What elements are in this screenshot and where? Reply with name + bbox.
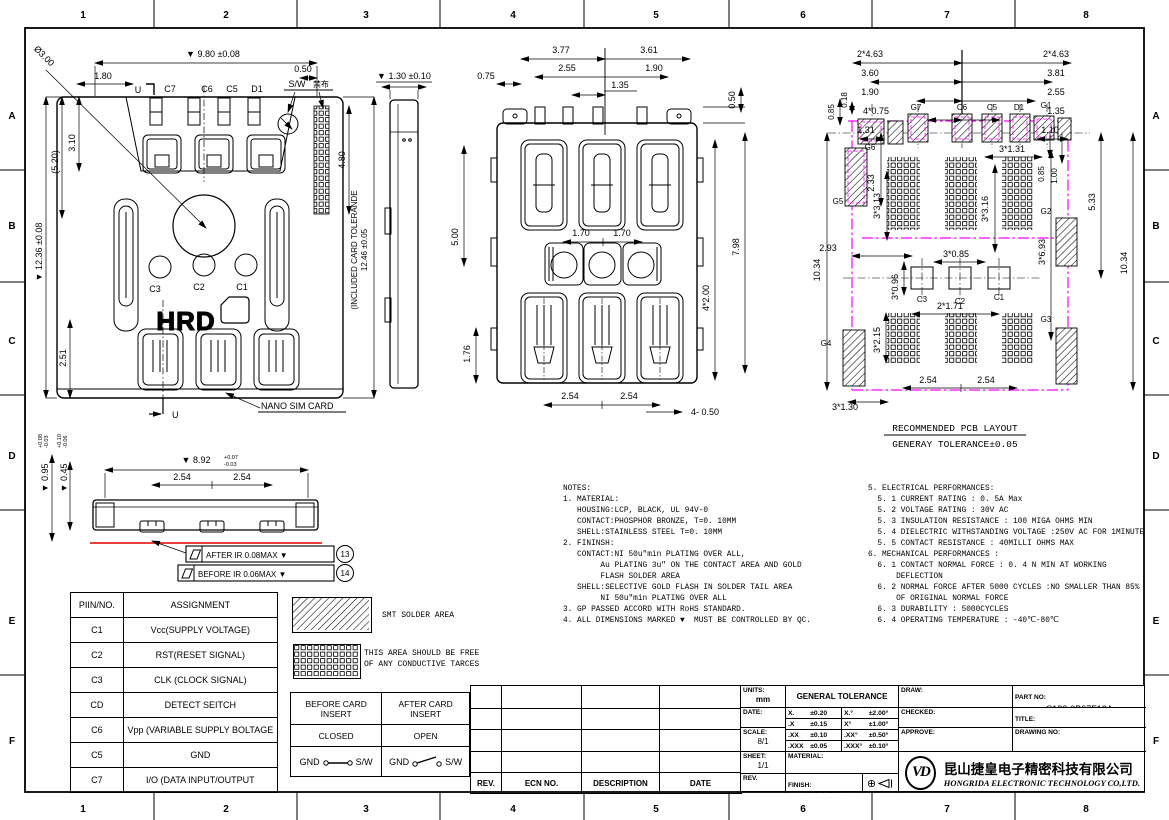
row-label: A <box>1152 111 1159 122</box>
balloon-number: 13 <box>341 550 350 559</box>
table-cell: X.° <box>841 708 866 719</box>
table-cell: X. <box>786 708 808 719</box>
dim-label: 2.55 <box>1047 87 1065 97</box>
revision-empty-cell <box>659 708 741 729</box>
row-label: E <box>9 616 16 627</box>
revision-empty-cell <box>659 751 741 772</box>
row-label: C <box>1152 336 1159 347</box>
dim-label: 2.33 <box>866 174 876 192</box>
scale-value: 8/1 <box>741 737 785 746</box>
tolerance-table-body: X.±0.20X.°±2.00°.X±0.15X°±1.00°.XX±0.10.… <box>786 708 898 751</box>
drawing-no-label: DRAWING NO: <box>1013 728 1146 737</box>
table-cell: ±0.50° <box>867 730 898 741</box>
dim-label: 4- 0.50 <box>691 407 719 417</box>
revision-empty-cell <box>501 729 581 751</box>
table-cell: Vcc(SUPPLY VOLTAGE) <box>123 618 277 643</box>
dim-label: ▼ 1.30 ±0.10 <box>377 71 431 81</box>
switch-state-open: OPEN <box>382 725 470 747</box>
dim-label: 0.75 <box>477 71 495 81</box>
row-label: F <box>1153 736 1159 747</box>
revision-table: REV. ECN NO. DESCRIPTION DATE <box>470 685 742 794</box>
title-cell: TITLE: 1.3H NANO SIM CARD CONN. <box>1013 708 1146 728</box>
flatness-symbol-icon <box>190 550 201 559</box>
dim-label: ▼ 8.92 <box>182 455 211 465</box>
sheet-value: 1/1 <box>741 761 785 770</box>
table-cell: .XX° <box>841 730 866 741</box>
side-tabs <box>491 158 703 350</box>
table-cell: .X <box>786 719 808 730</box>
smt-solder-area-label: SMT SOLDER AREA <box>382 610 454 621</box>
notes-material-finish: NOTES: 1. MATERIAL: HOUSING:LCP, BLACK, … <box>563 484 863 627</box>
col-label: 7 <box>944 804 950 815</box>
bottom-contact-windows <box>138 329 299 390</box>
row-label: D <box>8 451 15 462</box>
pin-table-body: C1Vcc(SUPPLY VOLTAGE)C2RST(RESET SIGNAL)… <box>71 618 278 793</box>
table-cell: X° <box>841 719 866 730</box>
revision-empty-cell <box>581 708 659 729</box>
col-label: 2 <box>223 804 229 815</box>
revision-header-rev: REV. <box>471 772 501 793</box>
draw-cell: DRAW: <box>899 686 1013 708</box>
dim-label: 1.35 <box>1047 106 1065 116</box>
dim-label: 3*3.13 <box>872 193 882 219</box>
flatness-symbol-icon <box>182 569 193 578</box>
flatness-note: AFTER IR 0.08MAX ▼ <box>206 551 288 560</box>
revision-empty-cell <box>581 729 659 751</box>
lower-windows <box>521 293 683 383</box>
contact-label: C6 <box>201 84 213 94</box>
table-cell: C5 <box>71 743 124 768</box>
col-label: 8 <box>1083 10 1089 21</box>
dim-label: 3.10 <box>67 134 77 152</box>
col-label: 7 <box>944 10 950 21</box>
table-cell: C7 <box>71 768 124 793</box>
general-tolerance-header: GENERAL TOLERANCE <box>786 686 899 708</box>
table-cell: Vpp (VARIABLE SUPPLY BOLTAGE <box>123 718 277 743</box>
revision-empty-cell <box>659 729 741 751</box>
nano-sim-icon <box>221 297 249 323</box>
col-label: 1 <box>80 804 86 815</box>
dim-label: 7.98 <box>731 238 741 256</box>
dim-label: 0.85 <box>827 104 836 120</box>
pin-assignment-table: PIIN/NO. ASSIGNMENT C1Vcc(SUPPLY VOLTAGE… <box>70 592 278 793</box>
dim-label: 4*2.00 <box>701 285 711 311</box>
top-solder-pins <box>150 98 260 125</box>
table-cell: RST(RESET SIGNAL) <box>123 643 277 668</box>
pcb-caption-title: RECOMMENDED PCB LAYOUT <box>892 423 1018 434</box>
col-label: 4 <box>510 804 516 815</box>
dim-label: Ø3.00 <box>32 44 56 68</box>
dim-label: 3.61 <box>640 45 658 55</box>
logo-text: VD <box>912 764 929 781</box>
dim-tolerance: -0.06 <box>63 435 69 448</box>
table-cell: CLK (CLOCK SIGNAL) <box>123 668 277 693</box>
revision-empty-cell <box>581 686 659 708</box>
top-view <box>46 63 374 414</box>
tolerance-table-cell: X.±0.20X.°±2.00°.X±0.15X°±1.00°.XX±0.10.… <box>786 708 899 752</box>
col-label: 5 <box>653 804 659 815</box>
dim-label: 1.70 <box>613 228 631 238</box>
dim-label: 3.81 <box>1047 68 1065 78</box>
dim-label: 1.90 <box>645 63 663 73</box>
table-cell: .XXX° <box>841 741 866 752</box>
pad-label: C1 <box>994 293 1005 302</box>
approve-cell: APPROVE: <box>899 728 1013 752</box>
dim-label: 3*2.15 <box>872 327 882 353</box>
sheet-cell: SHEET: 1/1 <box>741 752 786 774</box>
dim-label: 2.93 <box>819 243 837 253</box>
dim-label: 2*4.63 <box>857 49 883 59</box>
table-cell: ±2.00° <box>867 708 898 719</box>
rev-label: REV. <box>741 774 785 783</box>
dim-label: 12.46 ±0.05 <box>360 228 369 271</box>
company-name-cn: 昆山捷皇电子精密科技有限公司 <box>944 758 1140 778</box>
row-label: C <box>8 336 15 347</box>
row-label: D <box>1152 451 1159 462</box>
pad-label: C5 <box>987 103 998 112</box>
dim-label: 1.00 <box>1050 168 1059 184</box>
table-cell: ±0.20 <box>808 708 841 719</box>
revision-empty-cell <box>581 751 659 772</box>
dim-tolerance: -0.03 <box>224 462 237 468</box>
draw-label: DRAW: <box>899 686 1012 695</box>
dim-label: 1.70 <box>572 228 590 238</box>
revision-empty-cell <box>471 729 501 751</box>
part-no-label: PART NO: <box>1013 693 1048 702</box>
dim-label: 3*0.85 <box>943 249 969 259</box>
revision-empty-cell <box>659 686 741 708</box>
date-label: DATE: <box>741 708 785 717</box>
pad-label: G7 <box>911 103 922 112</box>
company-name-en: HONGRIDA ELECTRONIC TECHNOLOGY CO,LTD. <box>944 778 1140 788</box>
dim-label: 3.60 <box>861 68 879 78</box>
conductive-free-label: THIS AREA SHOULD BE FREE OF ANY CONDUCTI… <box>364 648 479 670</box>
dim-label: 5.00 <box>450 228 460 246</box>
finish-label: FINISH: <box>786 781 813 790</box>
middle-windows <box>545 243 661 285</box>
dim-label: 1.80 <box>94 71 112 81</box>
sw-label: S/W <box>445 757 462 767</box>
units-label: UNITS: <box>741 686 785 695</box>
pcb-caption-tolerance: GENERAY TOLERANCE±0.05 <box>892 439 1018 450</box>
balloon-number: 14 <box>341 569 350 578</box>
company-logo: VD <box>905 756 936 790</box>
dim-label: 1.10 <box>1041 125 1059 135</box>
switch-closed-icon <box>322 755 354 769</box>
dim-label: 4.80 <box>337 151 347 169</box>
table-cell: C3 <box>71 668 124 693</box>
contact-label: C1 <box>236 282 248 292</box>
switch-col-header: BEFORE CARD INSERT <box>291 693 382 725</box>
revision-empty-cell <box>471 686 501 708</box>
pad-label: C3 <box>917 295 928 304</box>
col-label: 6 <box>800 10 806 21</box>
contact-label: C7 <box>164 84 176 94</box>
col-label: 3 <box>363 804 369 815</box>
section-view <box>52 455 354 582</box>
dim-label: 2.54 <box>173 472 191 482</box>
dim-label: 10.34 <box>1119 252 1129 275</box>
sheet-label: SHEET: <box>741 752 785 761</box>
projection-cone-icon <box>878 778 894 789</box>
dim-label: 0.50 <box>294 64 312 74</box>
smt-solder-area-swatch <box>292 597 372 633</box>
dim-label: ▼ 12.36 ±0.08 <box>34 223 44 282</box>
material-label: MATERIAL: <box>786 752 898 761</box>
scale-cell: SCALE: 8/1 <box>741 728 786 752</box>
revision-header-date: DATE <box>659 772 741 793</box>
checked-cell: CHECKED: <box>899 708 1013 728</box>
finish-value: SEE NOTE <box>786 792 862 793</box>
dim-tolerance: +0.07 <box>224 455 238 461</box>
row-label: B <box>1152 221 1159 232</box>
connector-body-outline <box>57 97 343 398</box>
dim-label: ▼ 9.80 ±0.08 <box>186 49 240 59</box>
switch-label: S/W <box>289 79 307 89</box>
contact-label: C5 <box>226 84 238 94</box>
contact-label: C2 <box>193 282 205 292</box>
dim-label: ▼ 0.45 <box>59 464 69 493</box>
revision-header-ecn: ECN NO. <box>501 772 581 793</box>
solder-tails <box>535 107 647 124</box>
row-label: B <box>8 221 15 232</box>
dim-label: 5.33 <box>1087 193 1097 211</box>
title-block: UNITS: mm DATE: SCALE: 8/1 SHEET: 1/1 RE… <box>740 685 1145 792</box>
dim-label: 2*4.63 <box>1043 49 1069 59</box>
section-dimension-lines <box>52 455 308 541</box>
dim-label: 1.90 <box>861 87 879 97</box>
table-cell: C2 <box>71 643 124 668</box>
title-label: TITLE: <box>1013 715 1037 724</box>
approve-label: APPROVE: <box>899 728 1012 737</box>
table-cell: C6 <box>71 718 124 743</box>
contact-label: C3 <box>149 284 161 294</box>
rev-cell: REV. <box>741 774 786 793</box>
table-cell: DETECT SEITCH <box>123 693 277 718</box>
table-cell: ±0.05 <box>808 741 841 752</box>
dim-label: 2.54 <box>233 472 251 482</box>
material-cell: MATERIAL: <box>786 752 899 774</box>
date-cell: DATE: <box>741 708 786 728</box>
pad-label: G5 <box>833 197 844 206</box>
col-label: 5 <box>653 10 659 21</box>
dim-label: 2.54 <box>620 391 638 401</box>
pin-table-header: ASSIGNMENT <box>123 593 277 618</box>
switch-state-table: BEFORE CARD INSERT AFTER CARD INSERT CLO… <box>290 692 470 777</box>
brand-mark: HRD <box>156 306 215 336</box>
table-cell: GND <box>123 743 277 768</box>
pad-label: G2 <box>1041 207 1052 216</box>
row-label: E <box>1153 616 1160 627</box>
drawing-sheet: 1 2 3 4 5 6 7 8 1 2 3 4 5 6 7 8 A B C D … <box>0 0 1169 820</box>
nano-sim-card-label: NANO SIM CARD <box>261 401 334 411</box>
section-u-label: U <box>172 410 179 420</box>
finish-cell: FINISH: SEE NOTE <box>786 774 863 793</box>
revision-empty-cell <box>501 708 581 729</box>
switch-state-closed: CLOSED <box>291 725 382 747</box>
pad-label: D1 <box>1014 103 1025 112</box>
dim-label: ▼ 0.95 <box>40 464 50 493</box>
keepout-label: 禁布 <box>313 79 329 89</box>
dim-label: 0.85 <box>1037 166 1046 182</box>
section-u-label: U <box>135 85 142 95</box>
company-cell: VD 昆山捷皇电子精密科技有限公司 HONGRIDA ELECTRONIC TE… <box>899 752 1146 793</box>
row-label: F <box>9 736 15 747</box>
bottom-view-dimension-lines <box>464 59 745 412</box>
upper-windows <box>521 140 683 230</box>
dim-label: 2.54 <box>919 375 937 385</box>
table-cell: CD <box>71 693 124 718</box>
dim-label: (5.20) <box>50 150 60 174</box>
dim-label: 2*1.71 <box>937 301 963 311</box>
col-label: 3 <box>363 10 369 21</box>
conductive-free-swatch <box>293 644 361 679</box>
dim-label: 3*1.30 <box>832 402 858 412</box>
side-view <box>376 82 432 388</box>
dim-label: 1.76 <box>462 345 472 363</box>
dim-label: 3*1.31 <box>999 144 1025 154</box>
switch-open-icon <box>411 755 443 769</box>
upper-contact-windows <box>143 135 285 173</box>
dim-label: 4*0.75 <box>863 106 889 116</box>
table-cell: .XX <box>786 730 808 741</box>
col-label: 4 <box>510 10 516 21</box>
table-cell: .XXX <box>786 741 808 752</box>
pin-table-header: PIIN/NO. <box>71 593 124 618</box>
gnd-label: GND <box>389 757 409 767</box>
contact-dimples <box>149 254 257 278</box>
dim-label: 3*0.96 <box>890 274 900 300</box>
pad-label: C6 <box>957 103 968 112</box>
keepout-strip <box>314 106 329 214</box>
checked-label: CHECKED: <box>899 708 1012 717</box>
dim-label: 3*3.16 <box>980 196 990 222</box>
contact-label: D1 <box>251 84 263 94</box>
dim-label: 0.18 <box>840 92 849 108</box>
dim-label: 3.77 <box>552 45 570 55</box>
dim-label: 2.54 <box>561 391 579 401</box>
dim-label: 10.34 <box>812 259 822 282</box>
part-no-cell: PART NO: S182-0B07F13A <box>1013 686 1146 708</box>
dim-label: 1.35 <box>611 80 629 90</box>
flatness-note: BEFORE IR 0.06MAX ▼ <box>198 570 286 579</box>
table-cell: I/O (DATA INPUT/OUTPUT <box>123 768 277 793</box>
revision-empty-cell <box>471 751 501 772</box>
row-label: A <box>8 111 15 122</box>
col-label: 2 <box>223 10 229 21</box>
dim-label: 2.55 <box>558 63 576 73</box>
sw-label: S/W <box>356 757 373 767</box>
col-label: 8 <box>1083 804 1089 815</box>
projection-cell: ⊕ <box>863 774 899 793</box>
dim-label: 2.54 <box>977 375 995 385</box>
dim-label: 1.31 <box>857 125 875 135</box>
notes-performance: 5. ELECTRICAL PERFORMANCES: 5. 1 CURRENT… <box>868 484 1146 627</box>
revision-empty-cell <box>501 751 581 772</box>
table-cell: ±0.10° <box>867 741 898 752</box>
bottom-view <box>464 48 745 412</box>
switch-col-header: AFTER CARD INSERT <box>382 693 470 725</box>
revision-empty-cell <box>501 686 581 708</box>
table-cell: ±0.10 <box>808 730 841 741</box>
dim-label: (INCLUDED CARD TOLERANDE <box>350 190 359 309</box>
units-cell: UNITS: mm <box>741 686 786 708</box>
pad-label: G3 <box>1041 315 1052 324</box>
dim-label: 3*6.93 <box>1037 239 1047 265</box>
gnd-label: GND <box>300 757 320 767</box>
units-value: mm <box>741 695 785 704</box>
dim-label: 2.51 <box>58 349 68 367</box>
scale-label: SCALE: <box>741 728 785 737</box>
col-label: 1 <box>80 10 86 21</box>
table-cell: ±0.15 <box>808 719 841 730</box>
pad-label: G6 <box>865 143 876 152</box>
drawing-no-cell: DRAWING NO: <box>1013 728 1146 752</box>
table-cell: ±1.00° <box>867 719 898 730</box>
revision-empty-cell <box>471 708 501 729</box>
section-view-labels: ▼ 8.92 +0.07 -0.03 2.54 2.54 ▼ 0.95 +0.0… <box>38 434 350 579</box>
dim-label: 0.50 <box>727 91 737 109</box>
col-label: 6 <box>800 804 806 815</box>
pad-label: G4 <box>821 339 832 348</box>
projection-circle-icon: ⊕ <box>867 777 876 790</box>
dim-tolerance: -0.03 <box>44 435 50 448</box>
revision-header-description: DESCRIPTION <box>581 772 659 793</box>
table-cell: C1 <box>71 618 124 643</box>
